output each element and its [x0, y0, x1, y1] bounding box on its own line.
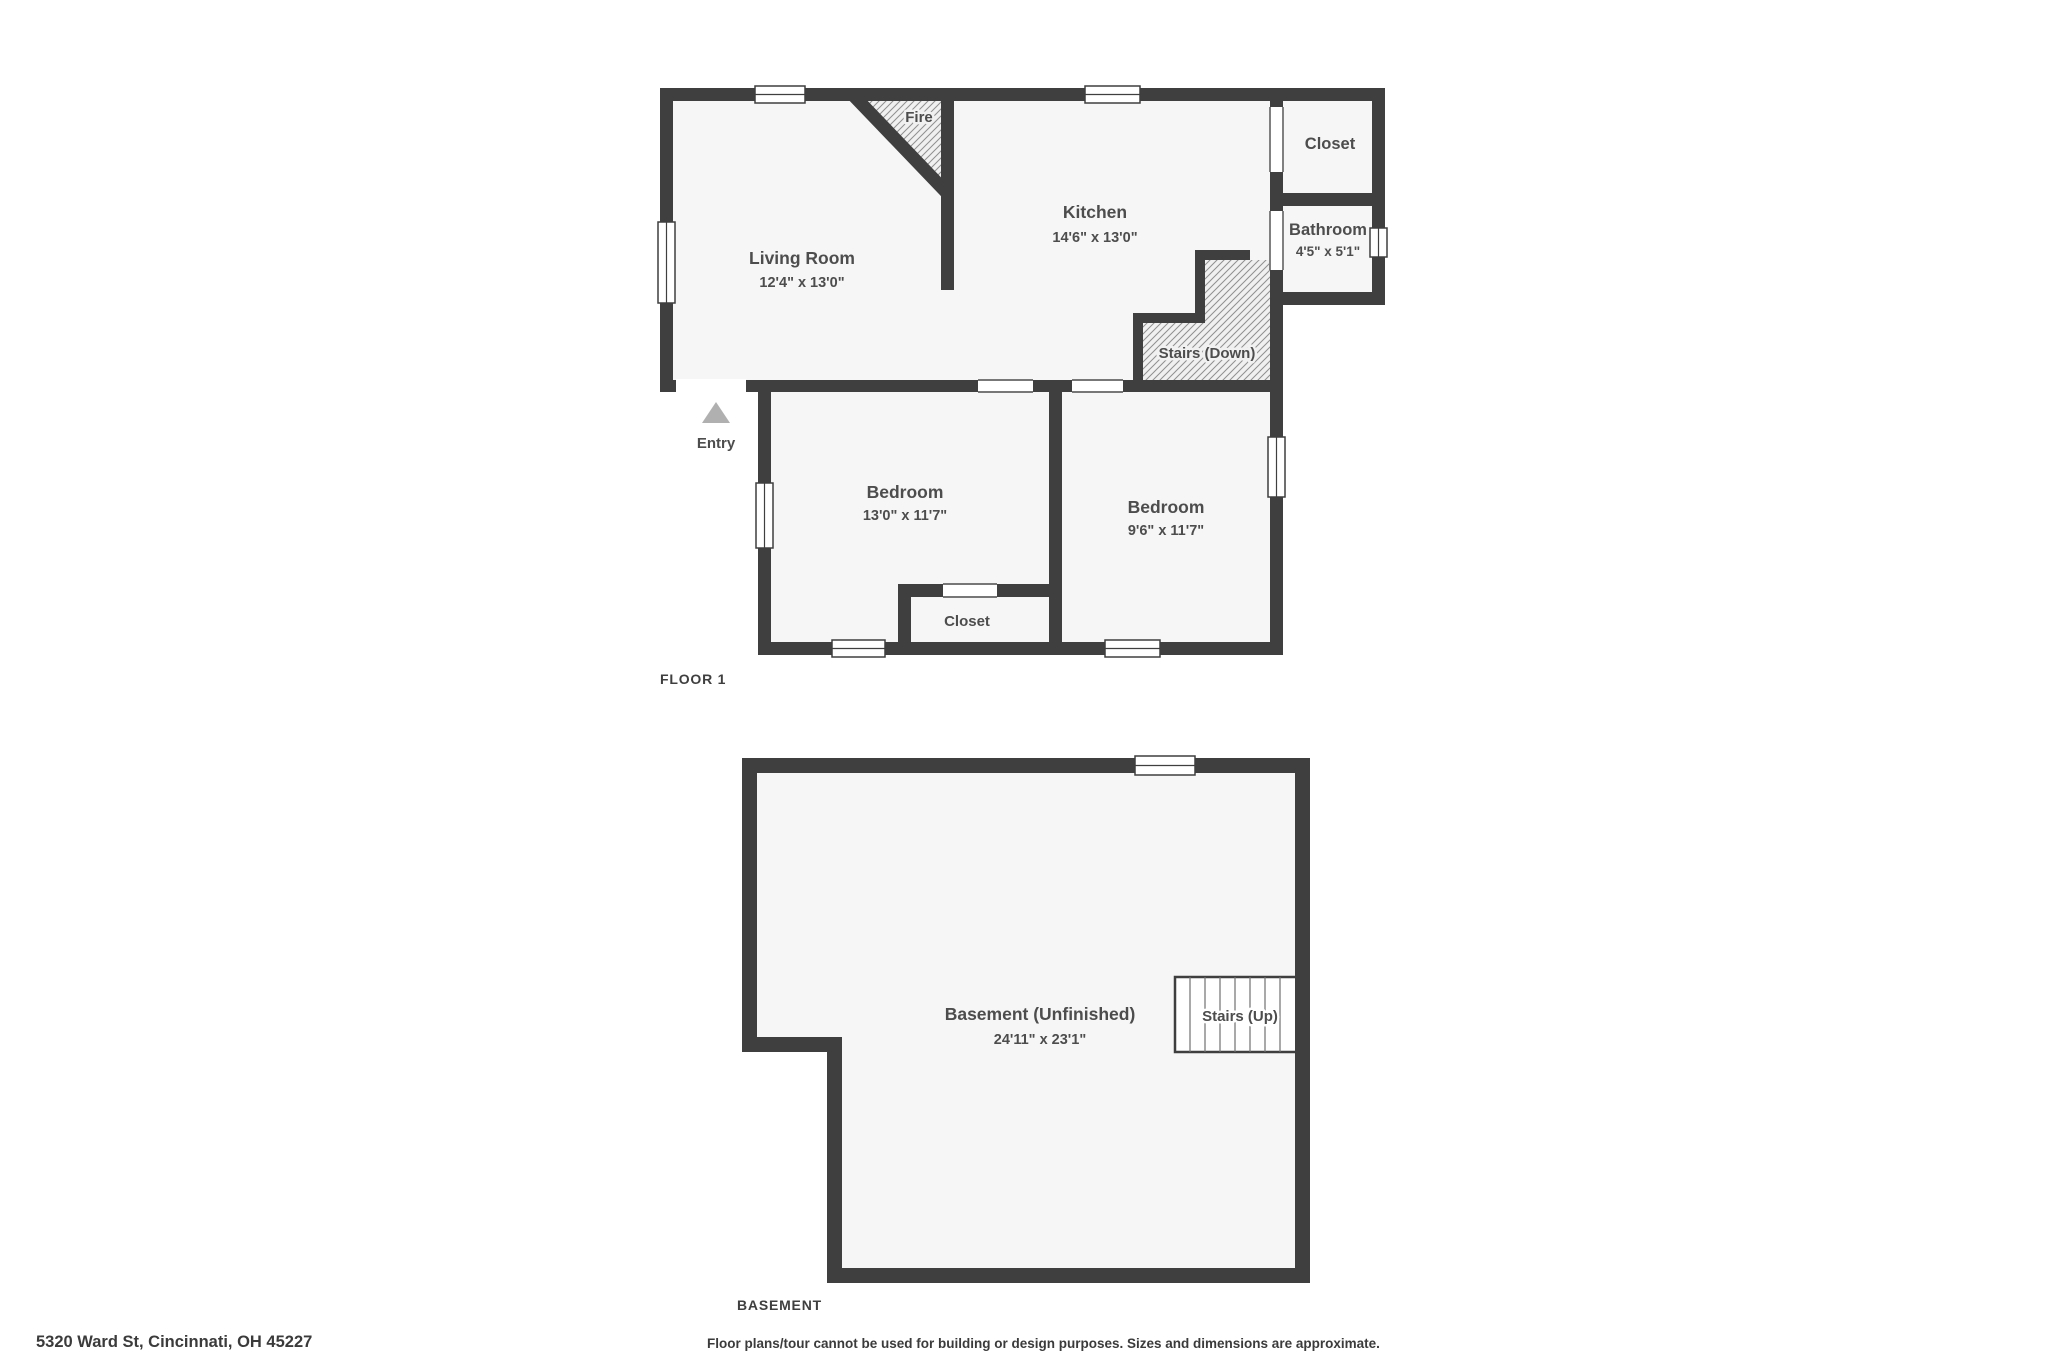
bedroom-right-label: Bedroom	[1128, 497, 1205, 517]
living-room-label: Living Room	[749, 248, 855, 268]
door-opening	[1269, 211, 1284, 270]
window-icon	[658, 222, 675, 303]
window-icon	[1085, 86, 1140, 103]
window-icon	[1105, 640, 1160, 657]
kitchen-label: Kitchen	[1063, 202, 1127, 222]
footer-address: 5320 Ward St, Cincinnati, OH 45227	[36, 1333, 312, 1351]
window-icon	[755, 86, 805, 103]
basement-room-dims: 24'11" x 23'1"	[994, 1032, 1086, 1048]
window-icon	[1268, 437, 1285, 497]
living-room-dims: 12'4" x 13'0"	[759, 275, 844, 291]
kitchen-dims: 14'6" x 13'0"	[1052, 230, 1137, 246]
entry-label: Entry	[697, 435, 736, 452]
basement-room-label: Basement (Unfinished)	[945, 1004, 1136, 1024]
door-opening	[1269, 107, 1284, 172]
door-opening	[943, 583, 997, 598]
floor-plan-image: Living Room 12'4" x 13'0" Kitchen 14'6" …	[0, 0, 2048, 1365]
bedroom-left-dims: 13'0" x 11'7"	[863, 508, 947, 524]
bathroom-label: Bathroom	[1289, 221, 1367, 239]
bathroom-dims: 4'5" x 5'1"	[1296, 244, 1360, 259]
basement-title: BASEMENT	[737, 1297, 822, 1313]
stairs-up-label: Stairs (Up)	[1202, 1008, 1278, 1025]
entry-arrow-icon	[702, 402, 730, 423]
door-opening	[1072, 379, 1123, 393]
bedroom-right-dims: 9'6" x 11'7"	[1128, 523, 1204, 539]
bedroom-left-label: Bedroom	[867, 482, 944, 502]
window-icon	[1135, 756, 1195, 775]
footer-disclaimer: Floor plans/tour cannot be used for buil…	[707, 1336, 1380, 1351]
window-icon	[832, 640, 885, 657]
basement-plan: Stairs (Up) Basement (Unfinished) 24'11"…	[737, 756, 1310, 1313]
window-icon	[1370, 228, 1387, 257]
floor1-bedroom-area	[758, 392, 1283, 655]
closet-top-label: Closet	[1305, 135, 1356, 153]
entry-door-opening	[676, 379, 746, 393]
fireplace-label: Fire	[905, 109, 933, 126]
closet-bottom-label: Closet	[944, 613, 990, 630]
window-icon	[756, 483, 773, 548]
floor-plan-page: Living Room 12'4" x 13'0" Kitchen 14'6" …	[0, 0, 2048, 1365]
floor1-title: FLOOR 1	[660, 671, 726, 687]
footer: 5320 Ward St, Cincinnati, OH 45227 Floor…	[36, 1333, 1380, 1351]
stairs-down-label: Stairs (Down)	[1159, 345, 1256, 362]
floor1-plan: Living Room 12'4" x 13'0" Kitchen 14'6" …	[658, 86, 1387, 687]
stairs-up-box: Stairs (Up)	[1175, 977, 1295, 1052]
door-opening	[978, 379, 1033, 393]
